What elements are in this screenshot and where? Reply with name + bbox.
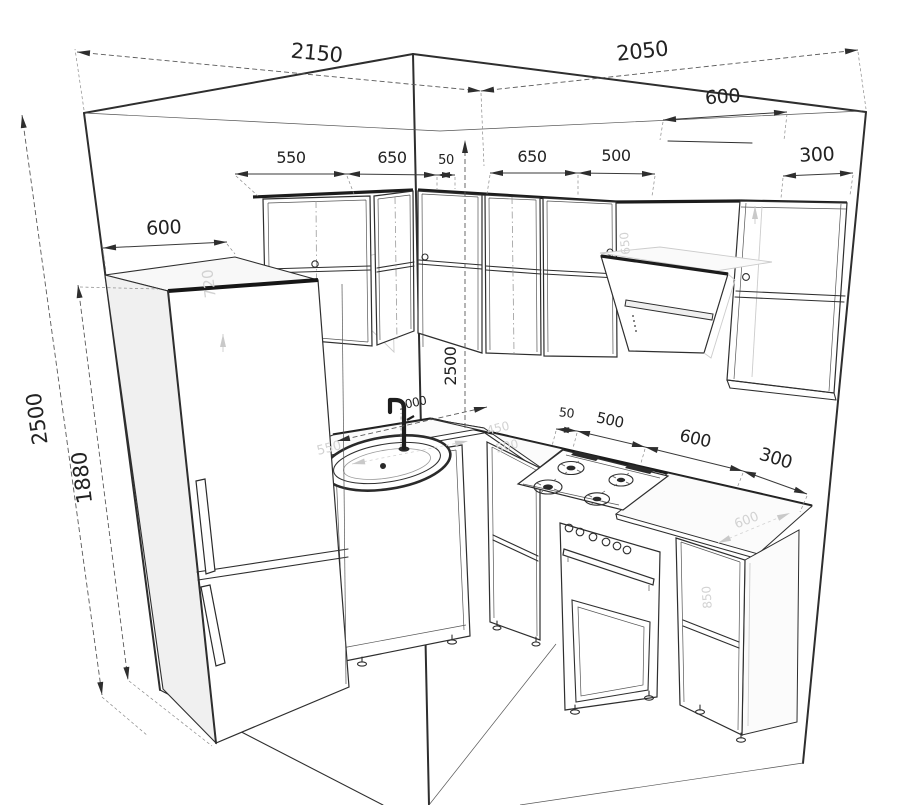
dim-upper-right-cab2: 500 (601, 146, 631, 165)
dim-fridge-depth: 600 (146, 216, 182, 240)
dim-faucet-offset: 1000 (397, 393, 428, 413)
dim-fridge-height: 1880 (67, 451, 97, 505)
wall-cabinets-right (418, 191, 617, 357)
upper-corner-cabinet (418, 191, 482, 353)
ghost-base-cabinet-height: 850 (699, 585, 715, 609)
oven (560, 523, 660, 710)
dim-line-500-base (577, 431, 645, 447)
left-wall-top-edge (84, 54, 413, 113)
dim-line-600-base (645, 447, 743, 471)
dim-base-cab3: 300 (757, 444, 795, 474)
kitchen-drawing-page: 2150 2050 600 300 550 650 50 650 500 600… (0, 0, 909, 805)
floor-edge-right (520, 763, 803, 805)
sink-drain (380, 463, 386, 469)
tall-wall-cabinet (727, 201, 847, 400)
ghost-upper-right-interior: 650 (617, 231, 633, 255)
fridge (105, 257, 349, 743)
dim-corner-wall-height: 2500 (441, 346, 460, 385)
floor-crease (429, 644, 556, 805)
corner-base-cabinet (487, 442, 540, 640)
dim-wall-right-length: 2050 (615, 36, 669, 65)
ghost-upper-cabinet-height: 720 (198, 268, 219, 299)
dim-upper-left-gap: 50 (438, 153, 454, 168)
dim-line-300-base (743, 471, 807, 494)
dim-upper-left-cab1: 550 (276, 148, 306, 167)
dim-upper-right-depth: 300 (799, 143, 835, 167)
dim-line-fridge-600 (103, 242, 227, 248)
dim-line-650-left (347, 174, 437, 175)
kitchen-technical-drawing: 2150 2050 600 300 550 650 50 650 500 600… (0, 0, 909, 805)
dim-upper-left-cab2: 650 (377, 148, 407, 167)
dim-wall-left-length: 2150 (290, 39, 344, 68)
dim-line-2150 (77, 52, 481, 91)
dim-line-500 (578, 173, 655, 174)
dim-line-300-top (783, 173, 853, 176)
dim-wall-height: 2500 (22, 392, 53, 447)
dim-hood-width: 600 (704, 85, 741, 109)
ceiling-back-edge (84, 111, 862, 131)
dim-base-gap: 50 (558, 404, 575, 421)
dim-line-hood-600 (663, 112, 787, 120)
dim-base-cab2: 600 (678, 426, 713, 453)
faucet-handle (407, 416, 414, 420)
dim-upper-right-cab1: 650 (517, 147, 547, 166)
dim-base-cab1: 500 (595, 408, 626, 431)
ghost-corner-counter-b: 500 (494, 437, 520, 456)
right-base-cabinet (676, 530, 799, 735)
dim-line-50-base (556, 429, 577, 431)
right-base-side (742, 530, 799, 735)
